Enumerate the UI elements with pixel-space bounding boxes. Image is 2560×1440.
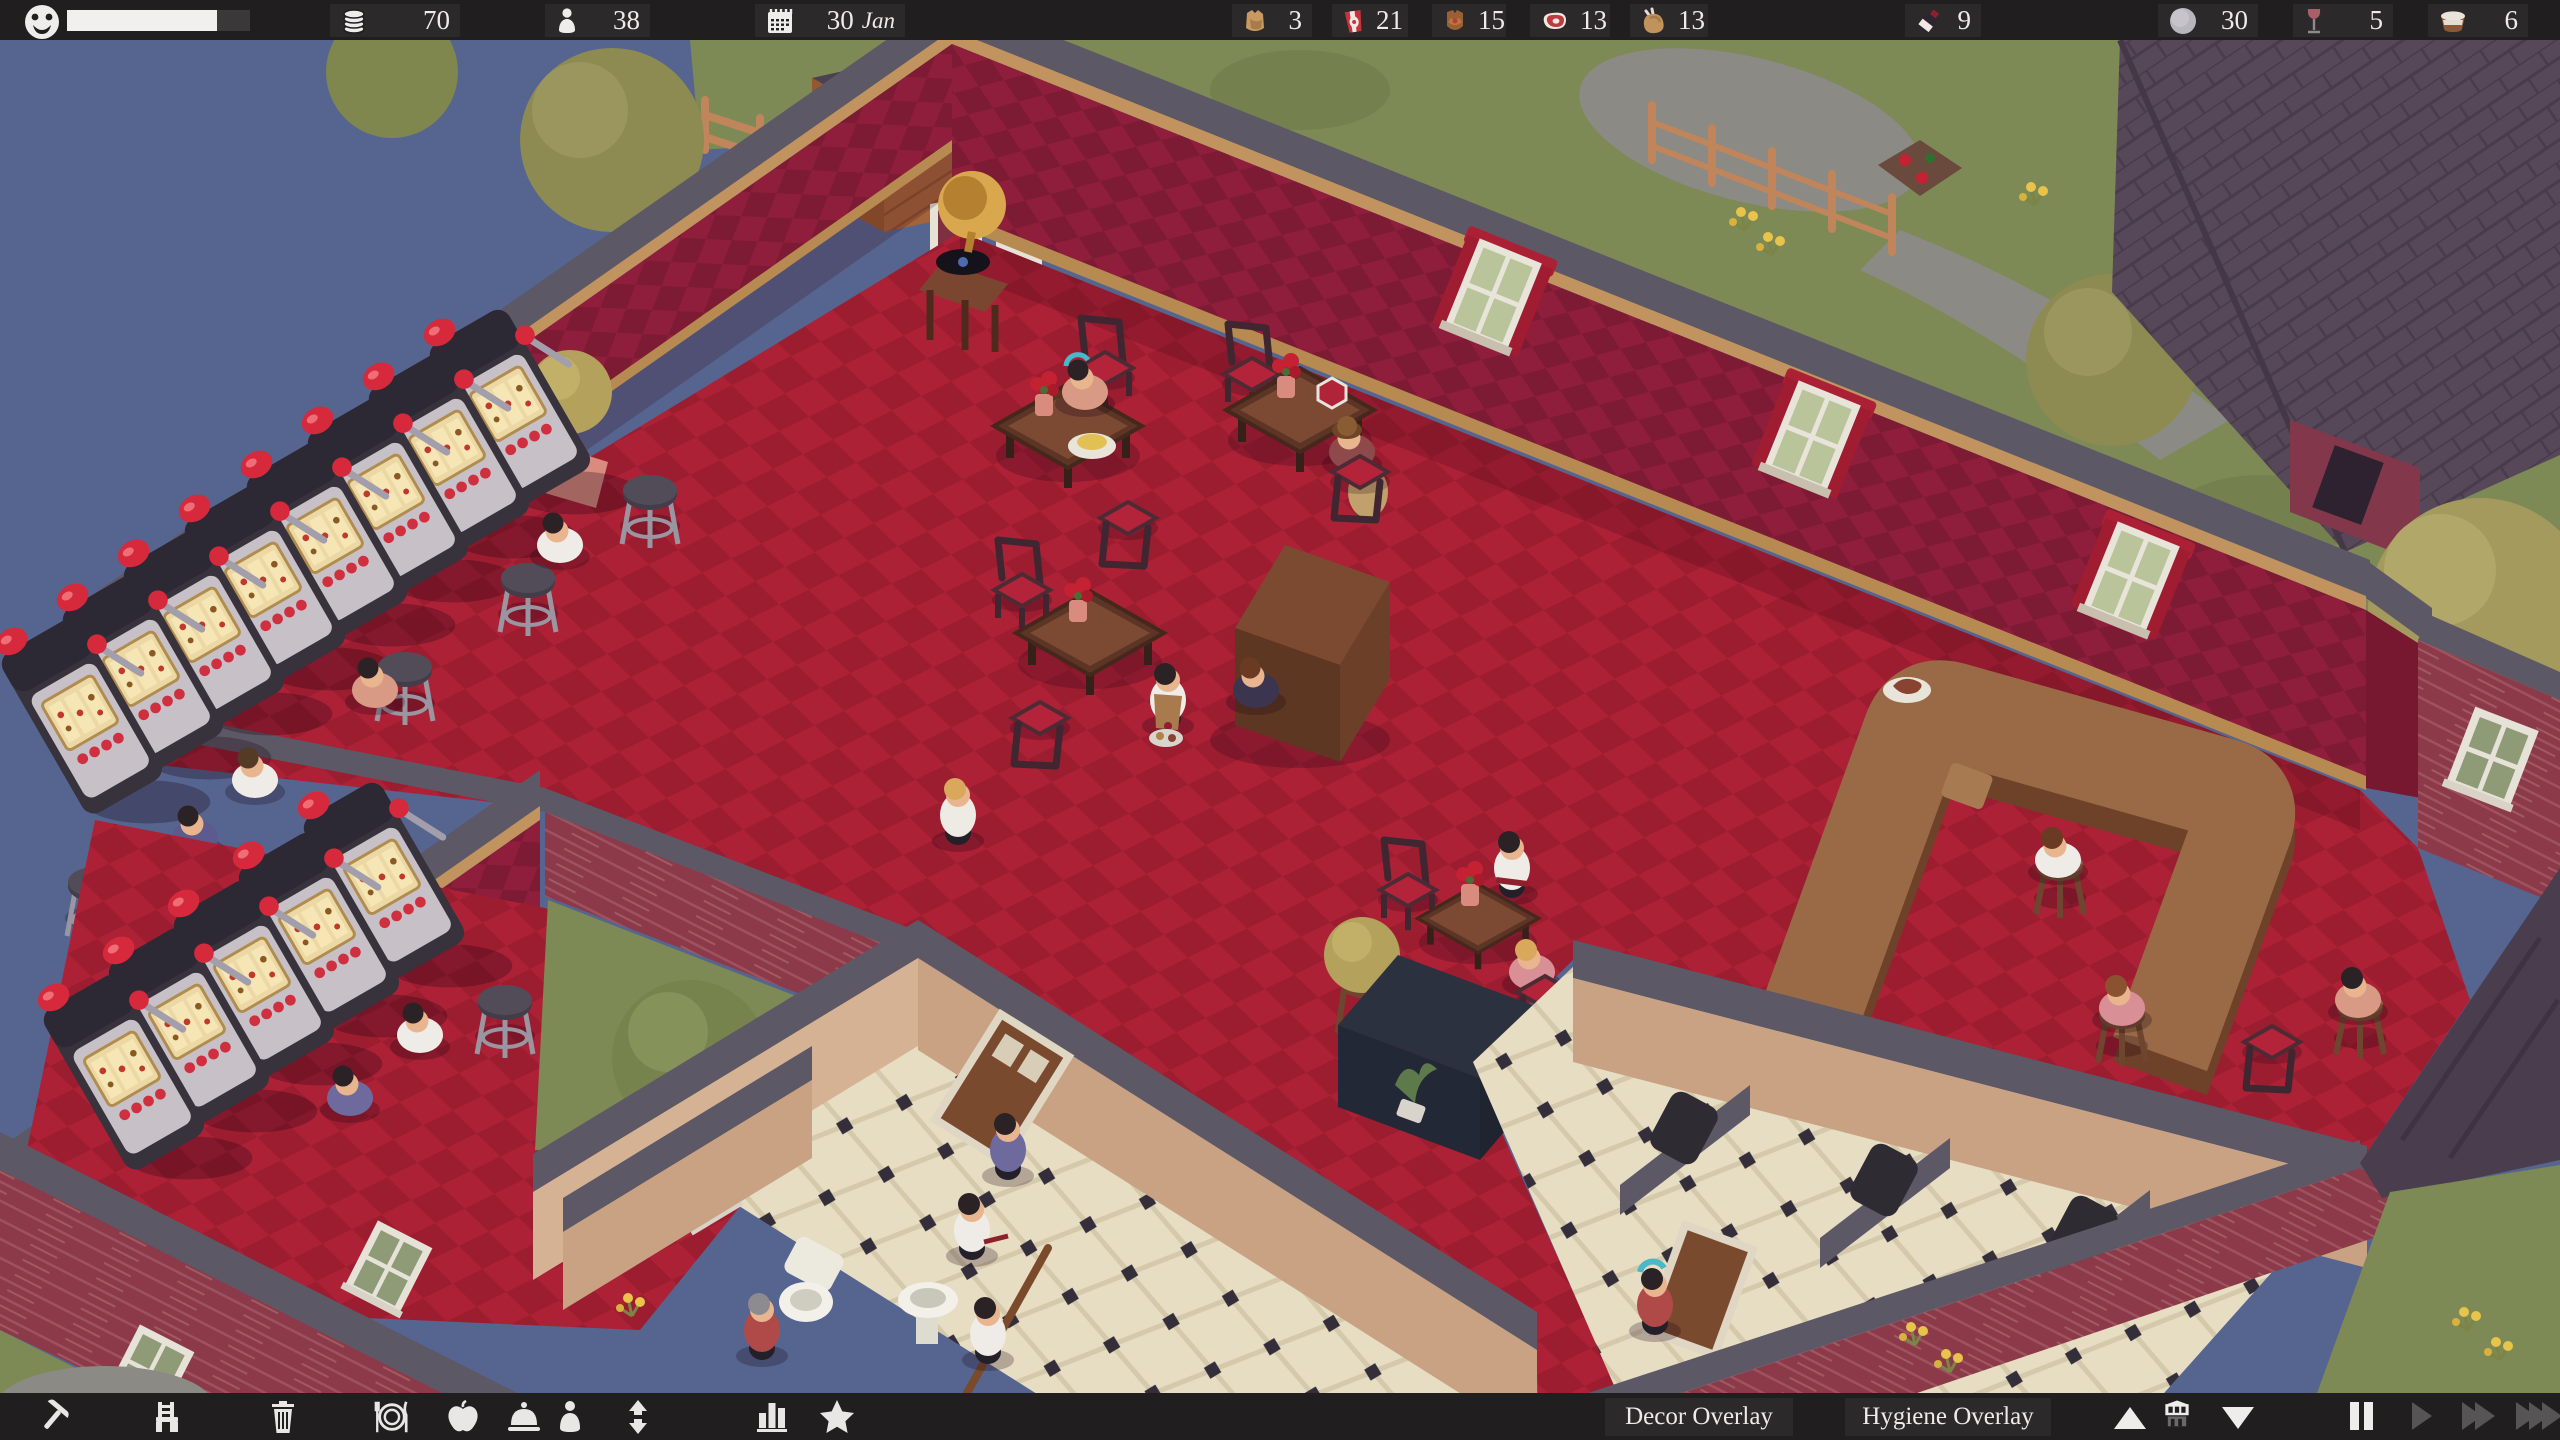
wine-bottle-icon <box>1915 7 1943 35</box>
hammer-icon <box>36 1399 72 1435</box>
play-button[interactable] <box>2412 1402 2432 1430</box>
date-month: Jan <box>862 8 895 34</box>
potato-sack-icon <box>1442 7 1468 35</box>
ingredient-stat-fries[interactable]: 21 <box>1332 4 1408 37</box>
person-icon <box>554 1399 586 1435</box>
bottom-toolbar: Decor Overlay Hygiene Overlay <box>0 1393 2560 1440</box>
tableware-stat-plates[interactable]: 30 <box>2158 4 2258 37</box>
game-world-viewport[interactable] <box>0 0 2560 1440</box>
bowl-icon <box>2438 8 2468 34</box>
service-tool-button[interactable] <box>505 1398 543 1436</box>
coins-icon <box>340 7 368 35</box>
money-value: 70 <box>423 7 450 34</box>
plate-icon <box>2168 6 2198 36</box>
mood-indicator[interactable] <box>22 2 62 42</box>
fries-box-icon <box>1342 7 1366 35</box>
flour-sack-icon <box>1242 7 1268 35</box>
date-day: 30 <box>827 7 854 34</box>
poultry-icon <box>1640 7 1668 35</box>
date-stat[interactable]: 30 Jan <box>755 4 905 37</box>
ratings-tool-button[interactable] <box>818 1398 856 1436</box>
chair-icon <box>149 1399 185 1435</box>
build-tool-button[interactable] <box>35 1398 73 1436</box>
floor-down-button[interactable] <box>2222 1407 2254 1429</box>
menu-tool-button[interactable] <box>372 1398 410 1436</box>
guest-count-value: 38 <box>613 7 640 34</box>
top-hud-bar: 70 38 30 Jan 3 21 <box>0 0 2560 40</box>
dish-icon <box>372 1399 410 1435</box>
tableware-stat-glasses[interactable]: 5 <box>2293 4 2393 37</box>
guest-count-stat[interactable]: 38 <box>545 4 650 37</box>
furniture-tool-button[interactable] <box>148 1398 186 1436</box>
mood-progress-fill <box>67 10 217 31</box>
tableware-stat-bowls[interactable]: 6 <box>2428 4 2528 37</box>
demolish-tool-button[interactable] <box>264 1398 302 1436</box>
ingredient-stat-potato[interactable]: 15 <box>1432 4 1506 37</box>
game-screen: 70 38 30 Jan 3 21 <box>0 0 2560 1440</box>
guest-icon <box>555 7 579 35</box>
ingredient-stat-flour[interactable]: 3 <box>1232 4 1312 37</box>
smiley-icon <box>22 2 62 42</box>
staff-tool-button[interactable] <box>551 1398 589 1436</box>
star-icon <box>818 1399 856 1435</box>
ingredient-stat-poultry[interactable]: 13 <box>1630 4 1708 37</box>
steak-icon <box>1540 8 1570 34</box>
cloche-icon <box>505 1399 543 1435</box>
floor-indicator[interactable] <box>2158 1395 2196 1433</box>
statistics-tool-button[interactable] <box>753 1398 791 1436</box>
pause-button[interactable] <box>2350 1402 2373 1430</box>
priorities-tool-button[interactable] <box>619 1398 657 1436</box>
fast-forward-button[interactable] <box>2462 1402 2495 1430</box>
trash-icon <box>265 1399 301 1435</box>
sort-arrows-icon <box>623 1399 653 1435</box>
decor-overlay-button[interactable]: Decor Overlay <box>1605 1398 1793 1436</box>
calendar-icon <box>765 6 795 36</box>
building-floors-icon <box>2158 1392 2196 1436</box>
ingredient-stat-steak[interactable]: 13 <box>1530 4 1610 37</box>
ingredients-tool-button[interactable] <box>444 1398 482 1436</box>
ingredient-stat-wine[interactable]: 9 <box>1905 4 1981 37</box>
bar-chart-icon <box>754 1399 790 1435</box>
mood-progress-bar <box>67 10 250 31</box>
fastest-forward-button[interactable] <box>2516 1402 2560 1430</box>
wine-glass-icon <box>2303 6 2325 36</box>
money-stat[interactable]: 70 <box>330 4 460 37</box>
floor-up-button[interactable] <box>2114 1407 2146 1429</box>
apple-icon <box>445 1399 481 1435</box>
hygiene-overlay-button[interactable]: Hygiene Overlay <box>1845 1398 2051 1436</box>
